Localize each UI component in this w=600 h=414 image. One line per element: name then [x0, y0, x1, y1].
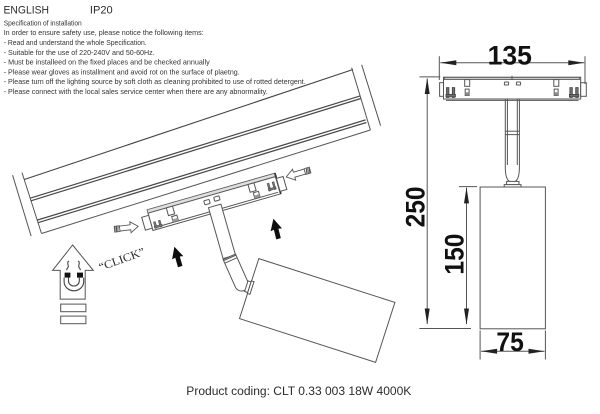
- svg-text:135: 135: [488, 40, 532, 70]
- svg-text:Product coding: CLT 0.33 003 1: Product coding: CLT 0.33 003 18W 4000K: [186, 384, 411, 398]
- svg-text:“CLICK”: “CLICK”: [97, 246, 146, 274]
- svg-text:75: 75: [496, 327, 523, 357]
- svg-text:- Please turn off the lighting: - Please turn off the lighting source by…: [4, 77, 306, 86]
- svg-text:- Suitable for the use of 220-: - Suitable for the use of 220-240V and 5…: [4, 48, 155, 57]
- svg-text:250: 250: [401, 186, 431, 227]
- svg-text:IP20: IP20: [90, 5, 113, 17]
- svg-text:- Read and understand the whol: - Read and understand the whole Specific…: [4, 38, 147, 47]
- svg-text:Specification of installation: Specification of installation: [4, 18, 82, 27]
- svg-text:- Must be installeed on the fi: - Must be installeed on the fixed places…: [4, 58, 210, 67]
- svg-text:ENGLISH: ENGLISH: [4, 5, 50, 17]
- svg-text:- Please wear gloves as instal: - Please wear gloves as installment and …: [4, 67, 240, 76]
- svg-text:150: 150: [440, 234, 470, 275]
- svg-text:In order to ensure safety use,: In order to ensure safety use, please no…: [4, 28, 204, 37]
- svg-text:- Please connect with the loca: - Please connect with the local sales se…: [4, 87, 268, 96]
